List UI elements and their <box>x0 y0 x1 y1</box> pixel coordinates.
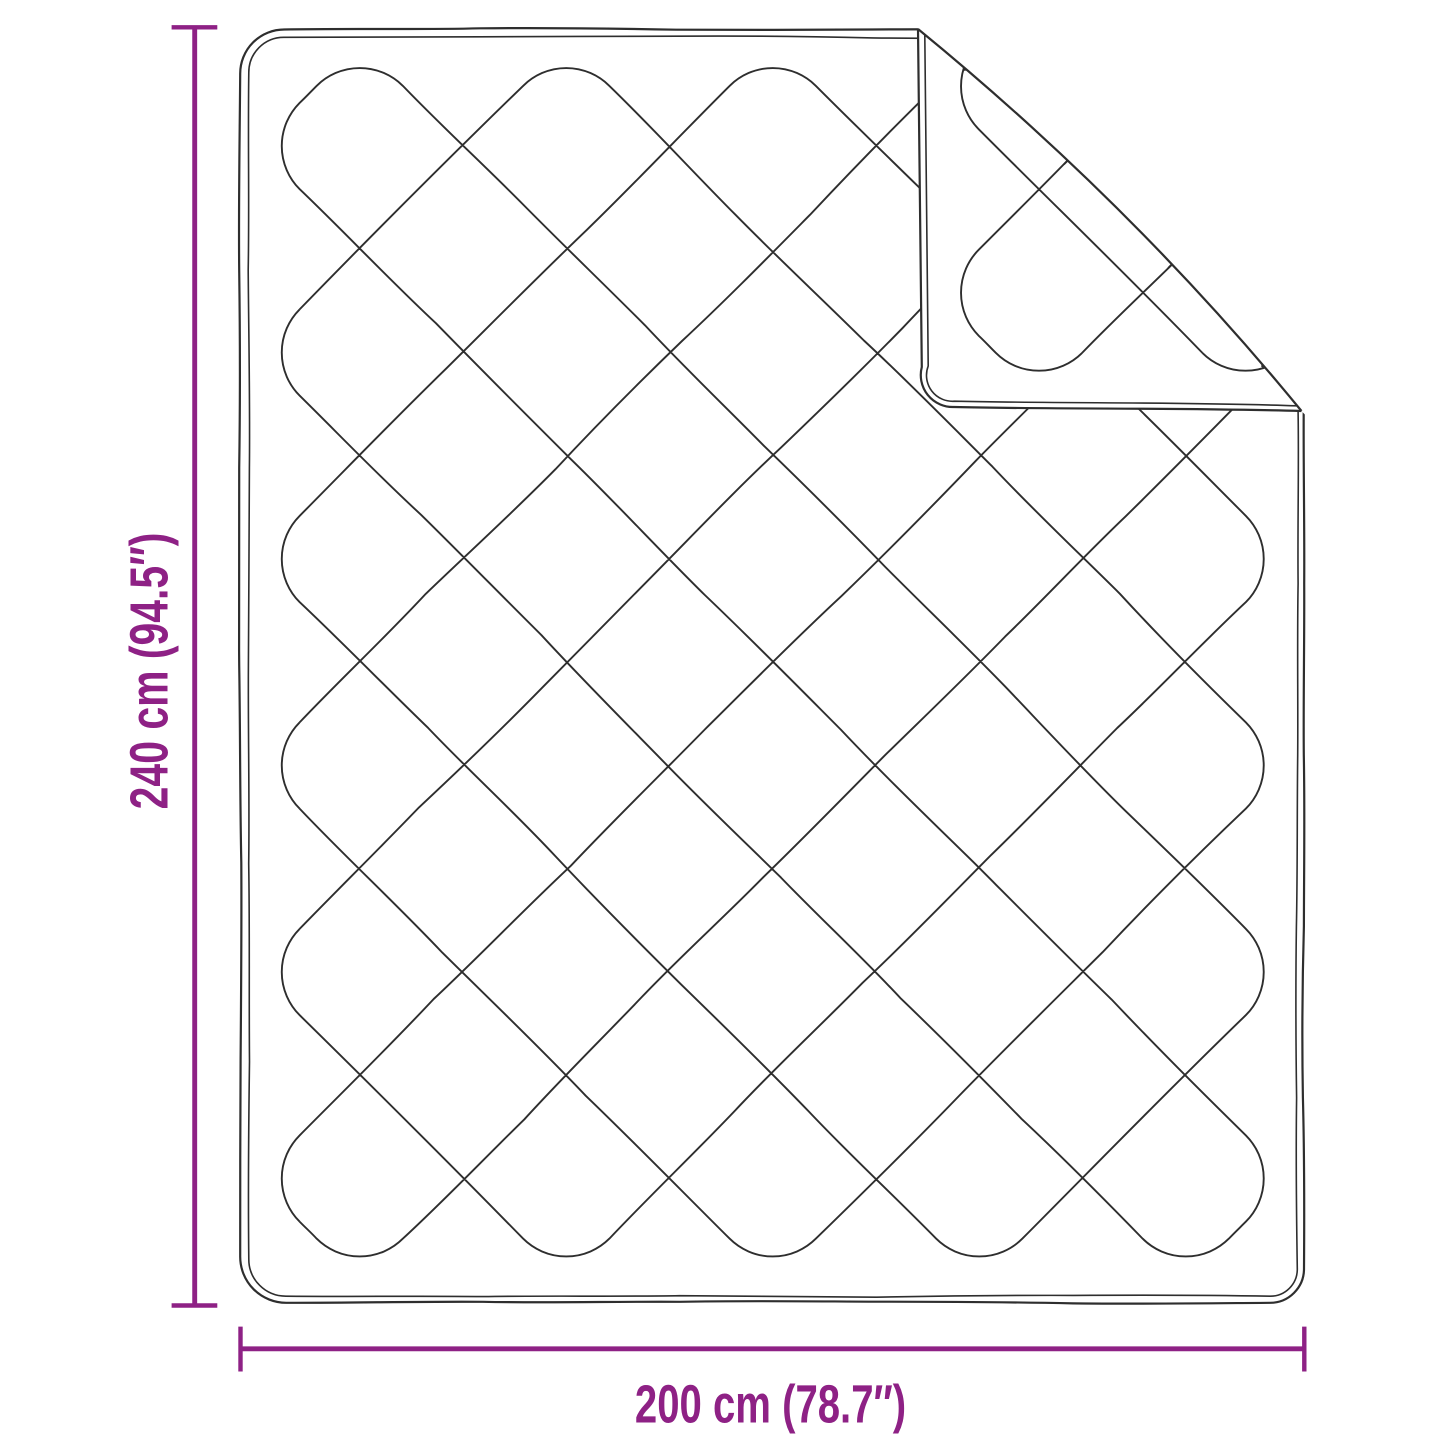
svg-text:240 cm (94.5″): 240 cm (94.5″) <box>120 533 180 810</box>
svg-text:200 cm (78.7″): 200 cm (78.7″) <box>635 1375 906 1435</box>
